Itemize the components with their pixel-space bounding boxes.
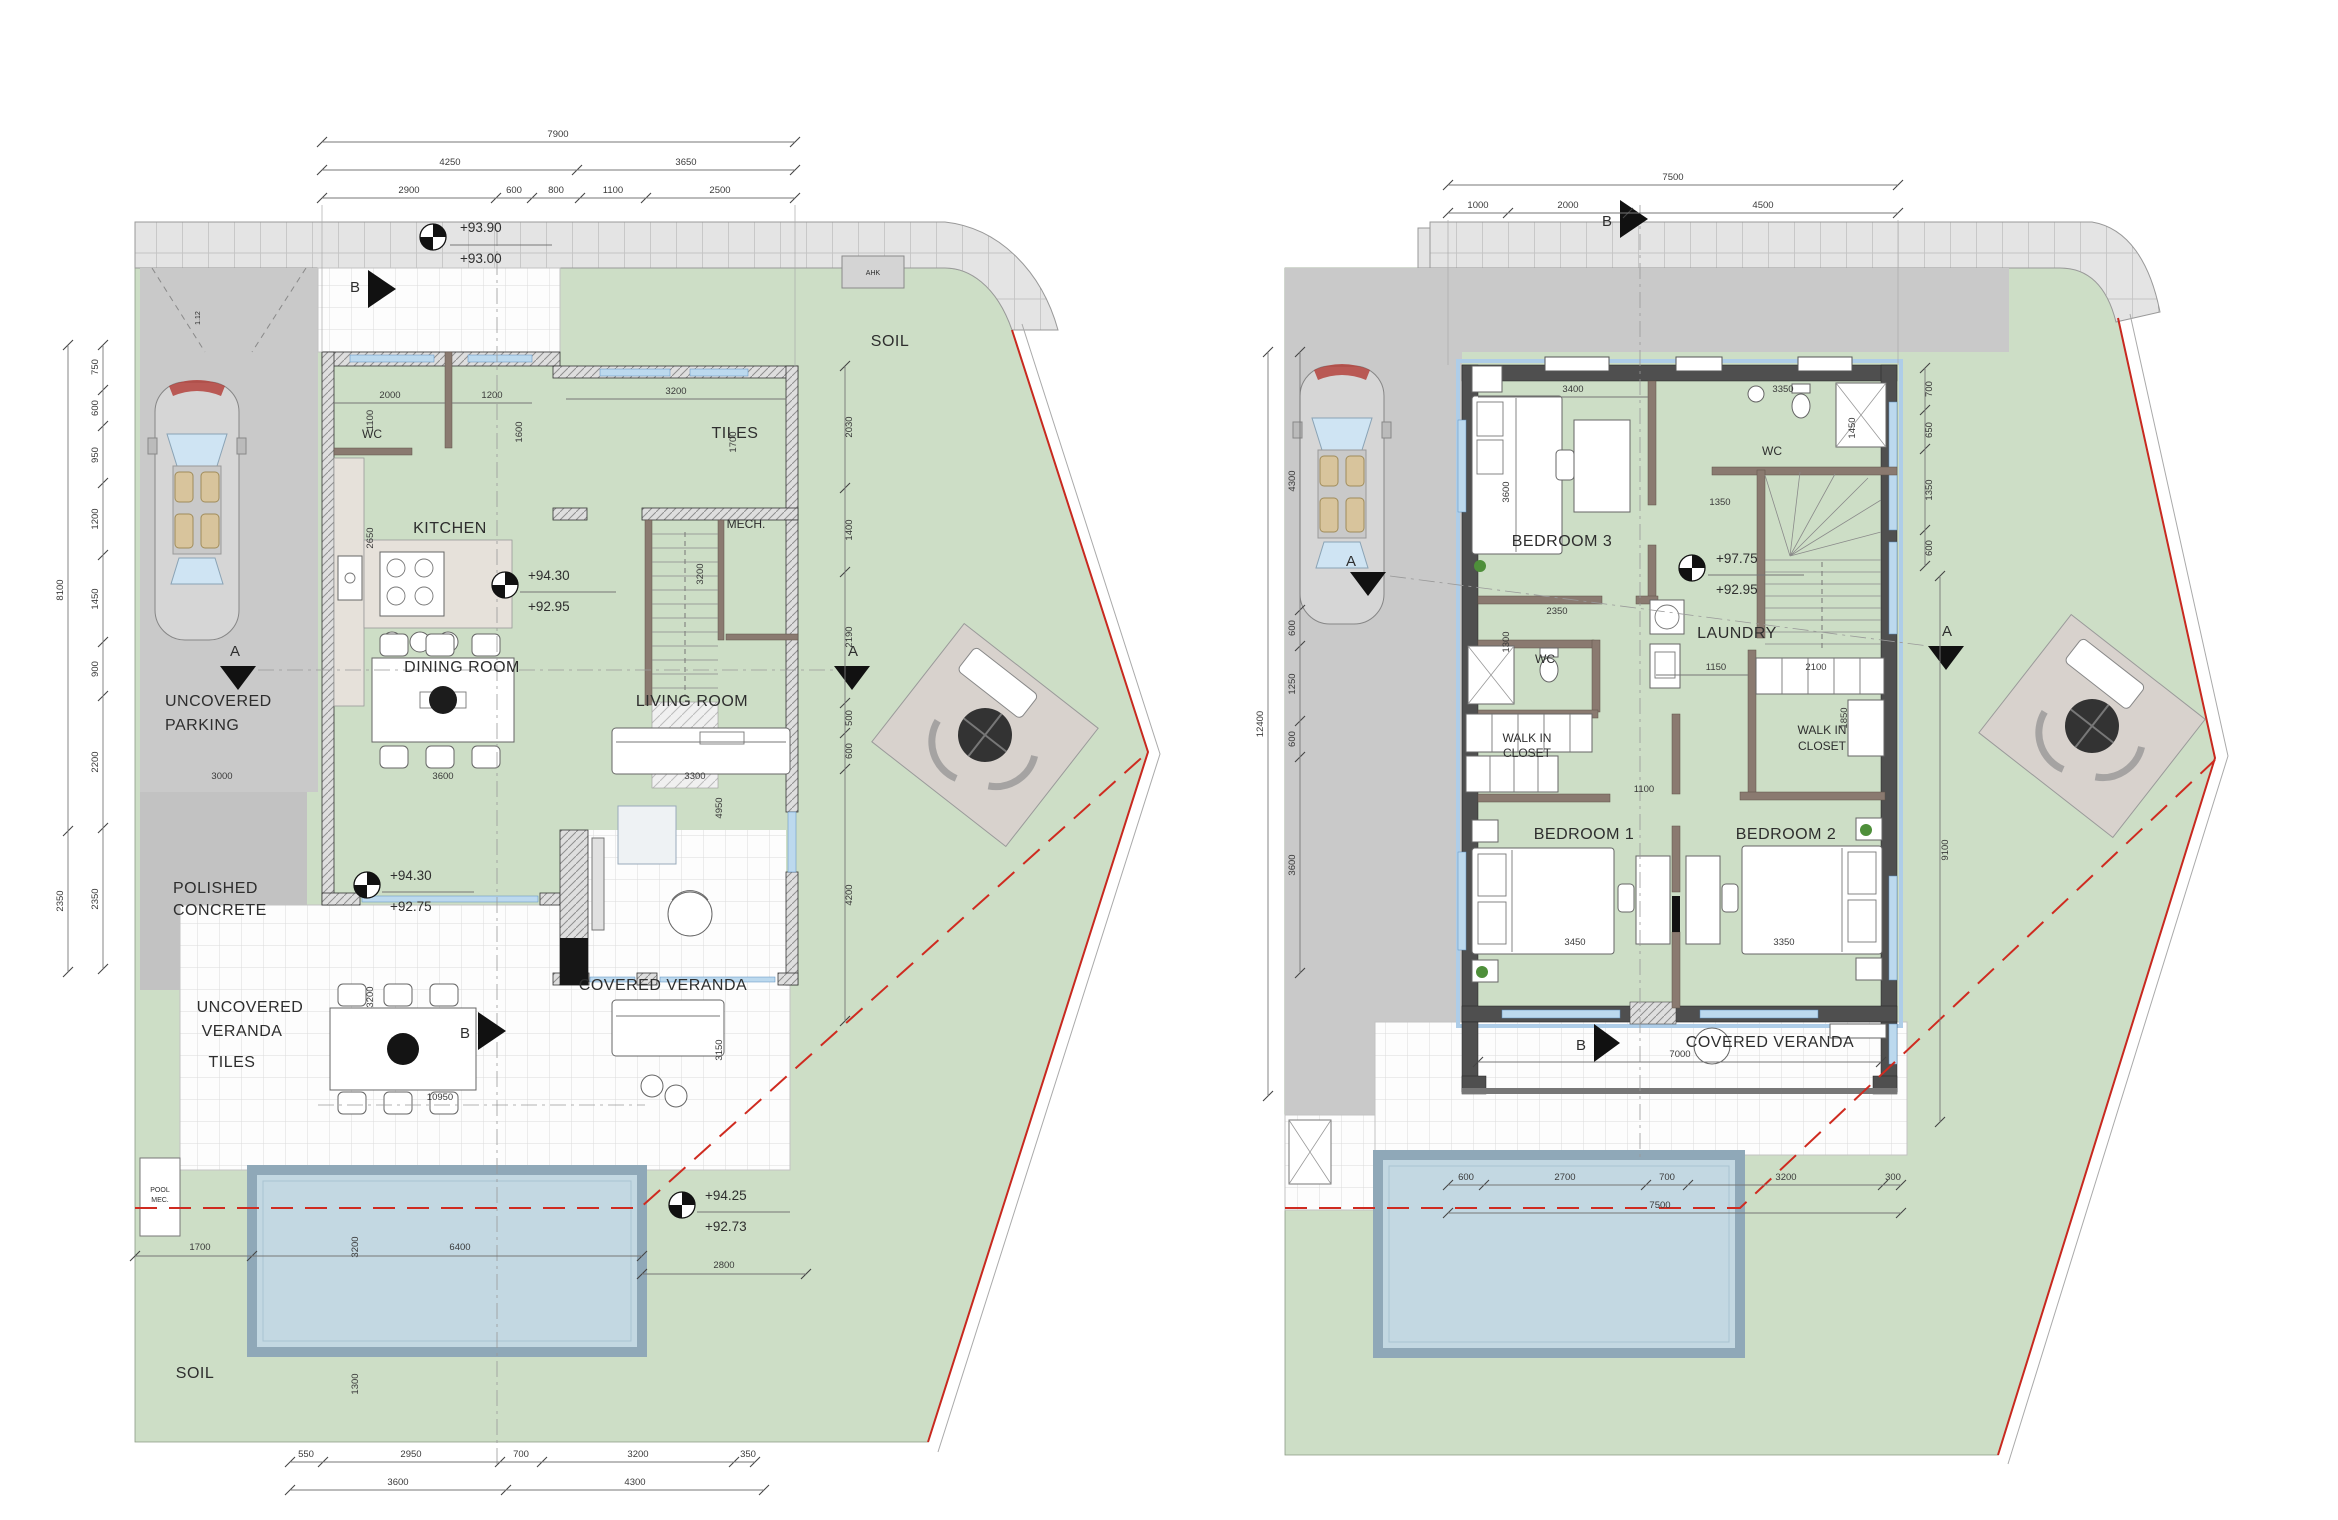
svg-text:750: 750 bbox=[90, 359, 101, 375]
svg-text:12400: 12400 bbox=[1255, 711, 1266, 737]
svg-text:+92.75: +92.75 bbox=[390, 899, 432, 914]
svg-text:1200: 1200 bbox=[481, 390, 502, 401]
svg-text:1200: 1200 bbox=[90, 508, 101, 529]
svg-text:3600: 3600 bbox=[387, 1477, 408, 1488]
svg-text:+93.00: +93.00 bbox=[460, 251, 502, 266]
svg-text:1350: 1350 bbox=[1709, 497, 1730, 508]
svg-text:1250: 1250 bbox=[1287, 673, 1298, 694]
svg-text:7500: 7500 bbox=[1649, 1200, 1670, 1211]
first-floor-plan: BEDROOM 3 WC LAUNDRY WC WALK IN CLOSET W… bbox=[1255, 172, 2228, 1464]
svg-text:3200: 3200 bbox=[695, 563, 706, 584]
svg-text:1000: 1000 bbox=[1467, 200, 1488, 211]
room-label-dining: DINING ROOM bbox=[404, 659, 520, 676]
svg-text:3300: 3300 bbox=[684, 771, 705, 782]
svg-text:3200: 3200 bbox=[1775, 1172, 1796, 1183]
wall-pier-dark bbox=[1672, 896, 1680, 932]
svg-text:2200: 2200 bbox=[90, 751, 101, 772]
room-label-bedroom1: BEDROOM 1 bbox=[1534, 826, 1635, 843]
svg-text:2950: 2950 bbox=[400, 1449, 421, 1460]
room-label-covered-veranda: COVERED VERANDA bbox=[579, 977, 747, 994]
svg-text:600: 600 bbox=[1458, 1172, 1474, 1183]
svg-text:1850: 1850 bbox=[1839, 707, 1850, 728]
svg-text:10950: 10950 bbox=[427, 1092, 453, 1103]
room-label-soil-top: SOIL bbox=[871, 333, 909, 350]
svg-text:4250: 4250 bbox=[439, 157, 460, 168]
svg-text:+93.90: +93.90 bbox=[460, 220, 502, 235]
svg-text:A: A bbox=[230, 643, 240, 660]
room-label-polished-1: POLISHED bbox=[173, 880, 258, 897]
room-label-wc1: WC bbox=[1762, 444, 1782, 458]
svg-text:4950: 4950 bbox=[714, 797, 725, 818]
svg-text:4300: 4300 bbox=[1287, 470, 1298, 491]
svg-text:1450: 1450 bbox=[90, 588, 101, 609]
svg-text:+94.30: +94.30 bbox=[528, 568, 570, 583]
pool bbox=[252, 1170, 642, 1352]
svg-text:600: 600 bbox=[1287, 620, 1298, 636]
ahk-label: AHK bbox=[866, 270, 881, 277]
svg-text:2030: 2030 bbox=[844, 416, 855, 437]
svg-text:2800: 2800 bbox=[713, 1260, 734, 1271]
svg-text:700: 700 bbox=[513, 1449, 529, 1460]
svg-text:2190: 2190 bbox=[844, 626, 855, 647]
pool-mec-label-2: MEC. bbox=[151, 1197, 169, 1204]
svg-text:600: 600 bbox=[506, 185, 522, 196]
room-label-wic2-b: CLOSET bbox=[1798, 739, 1847, 753]
svg-text:2350: 2350 bbox=[90, 888, 101, 909]
svg-text:B: B bbox=[460, 1025, 470, 1042]
svg-text:+94.25: +94.25 bbox=[705, 1188, 747, 1203]
svg-text:+94.30: +94.30 bbox=[390, 868, 432, 883]
svg-text:+92.95: +92.95 bbox=[528, 599, 570, 614]
pavement-step bbox=[1418, 228, 1430, 268]
svg-text:1700: 1700 bbox=[189, 1242, 210, 1253]
svg-text:1450: 1450 bbox=[1847, 417, 1858, 438]
svg-text:4500: 4500 bbox=[1752, 200, 1773, 211]
svg-text:3200: 3200 bbox=[627, 1449, 648, 1460]
car-first-floor bbox=[1293, 364, 1391, 624]
svg-text:2700: 2700 bbox=[1554, 1172, 1575, 1183]
floor-plans-svg: 1.12 AHK POOL MEC. bbox=[0, 0, 2338, 1520]
svg-text:3350: 3350 bbox=[1772, 384, 1793, 395]
svg-text:3350: 3350 bbox=[1773, 937, 1794, 948]
svg-text:3000: 3000 bbox=[211, 771, 232, 782]
svg-text:3200: 3200 bbox=[350, 1236, 361, 1257]
svg-text:4300: 4300 bbox=[624, 1477, 645, 1488]
room-label-kitchen: KITCHEN bbox=[413, 520, 487, 537]
room-label-parking-1: UNCOVERED bbox=[165, 693, 272, 710]
svg-text:1300: 1300 bbox=[1501, 631, 1512, 652]
room-label-bedroom3: BEDROOM 3 bbox=[1512, 533, 1613, 550]
slope-label: 1.12 bbox=[195, 311, 202, 325]
dining-table bbox=[372, 634, 514, 768]
svg-text:800: 800 bbox=[548, 185, 564, 196]
svg-text:2350: 2350 bbox=[1546, 606, 1567, 617]
svg-text:+97.75: +97.75 bbox=[1716, 551, 1758, 566]
entry-step-hatch bbox=[1630, 1002, 1676, 1024]
svg-text:600: 600 bbox=[844, 743, 855, 759]
room-label-laundry: LAUNDRY bbox=[1697, 625, 1777, 642]
svg-text:4200: 4200 bbox=[844, 884, 855, 905]
svg-text:B: B bbox=[350, 279, 360, 296]
pool-mec-label-1: POOL bbox=[150, 1187, 170, 1194]
svg-text:3200: 3200 bbox=[665, 386, 686, 397]
room-label-tiles-lower: TILES bbox=[209, 1054, 256, 1071]
driveway-top bbox=[1285, 268, 2009, 352]
room-label-uncovered-veranda-1: UNCOVERED bbox=[197, 999, 304, 1016]
svg-text:3600: 3600 bbox=[432, 771, 453, 782]
svg-text:2650: 2650 bbox=[365, 527, 376, 548]
room-label-parking-2: PARKING bbox=[165, 717, 239, 734]
svg-text:550: 550 bbox=[298, 1449, 314, 1460]
svg-text:A: A bbox=[1942, 623, 1952, 640]
svg-text:6400: 6400 bbox=[449, 1242, 470, 1253]
room-label-living: LIVING ROOM bbox=[636, 693, 748, 710]
svg-text:7900: 7900 bbox=[547, 129, 568, 140]
svg-text:300: 300 bbox=[1885, 1172, 1901, 1183]
room-label-wic1-b: CLOSET bbox=[1503, 746, 1552, 760]
room-label-wc2: WC bbox=[1535, 652, 1555, 666]
svg-text:2100: 2100 bbox=[1805, 662, 1826, 673]
svg-text:1150: 1150 bbox=[1706, 662, 1726, 673]
svg-text:3400: 3400 bbox=[1562, 384, 1583, 395]
svg-text:500: 500 bbox=[844, 710, 855, 726]
svg-text:1100: 1100 bbox=[1634, 784, 1654, 795]
svg-text:3150: 3150 bbox=[714, 1039, 725, 1060]
svg-text:900: 900 bbox=[90, 661, 101, 677]
svg-text:A: A bbox=[1346, 553, 1356, 570]
room-label-mech: MECH. bbox=[727, 517, 766, 531]
svg-text:1600: 1600 bbox=[514, 421, 525, 442]
svg-text:2500: 2500 bbox=[709, 185, 730, 196]
room-label-wic1-a: WALK IN bbox=[1503, 731, 1552, 745]
svg-text:2000: 2000 bbox=[379, 390, 400, 401]
drawing-sheet: 1.12 AHK POOL MEC. bbox=[0, 0, 2338, 1520]
room-label-uncovered-veranda-2: VERANDA bbox=[202, 1023, 283, 1040]
svg-text:350: 350 bbox=[740, 1449, 756, 1460]
svg-text:950: 950 bbox=[90, 447, 101, 463]
room-label-polished-2: CONCRETE bbox=[173, 902, 267, 919]
veranda-slab-edge bbox=[1462, 1088, 1897, 1094]
svg-text:2350: 2350 bbox=[55, 890, 66, 911]
room-label-soil-bottom: SOIL bbox=[176, 1365, 214, 1382]
svg-text:3650: 3650 bbox=[675, 157, 696, 168]
room-label-covered-veranda: COVERED VERANDA bbox=[1686, 1034, 1854, 1051]
svg-text:+92.73: +92.73 bbox=[705, 1219, 747, 1234]
svg-text:1100: 1100 bbox=[365, 410, 376, 430]
svg-text:3450: 3450 bbox=[1564, 937, 1585, 948]
svg-text:600: 600 bbox=[1287, 731, 1298, 747]
svg-text:1700: 1700 bbox=[728, 431, 739, 452]
svg-text:600: 600 bbox=[1924, 540, 1935, 556]
svg-text:7500: 7500 bbox=[1662, 172, 1683, 183]
svg-text:3600: 3600 bbox=[1287, 854, 1298, 875]
svg-text:3600: 3600 bbox=[1501, 481, 1512, 502]
svg-text:650: 650 bbox=[1924, 422, 1935, 438]
ground-floor-plan: 1.12 AHK POOL MEC. bbox=[55, 129, 1160, 1495]
svg-text:3200: 3200 bbox=[365, 986, 376, 1007]
svg-text:8100: 8100 bbox=[55, 579, 66, 600]
svg-text:+92.95: +92.95 bbox=[1716, 582, 1758, 597]
svg-text:2000: 2000 bbox=[1557, 200, 1578, 211]
svg-text:7000: 7000 bbox=[1669, 1049, 1690, 1060]
svg-text:9100: 9100 bbox=[1940, 839, 1951, 860]
car-ground-floor bbox=[148, 380, 246, 640]
svg-text:1400: 1400 bbox=[844, 519, 855, 540]
svg-text:1350: 1350 bbox=[1924, 479, 1935, 500]
svg-text:1100: 1100 bbox=[603, 185, 623, 196]
svg-text:B: B bbox=[1576, 1037, 1586, 1054]
svg-text:2900: 2900 bbox=[398, 185, 419, 196]
room-label-bedroom2: BEDROOM 2 bbox=[1736, 826, 1837, 843]
svg-text:700: 700 bbox=[1659, 1172, 1675, 1183]
svg-text:1300: 1300 bbox=[350, 1373, 361, 1394]
utility-box bbox=[1289, 1120, 1331, 1184]
svg-text:600: 600 bbox=[90, 400, 101, 416]
svg-text:700: 700 bbox=[1924, 381, 1935, 397]
svg-text:B: B bbox=[1602, 213, 1612, 230]
